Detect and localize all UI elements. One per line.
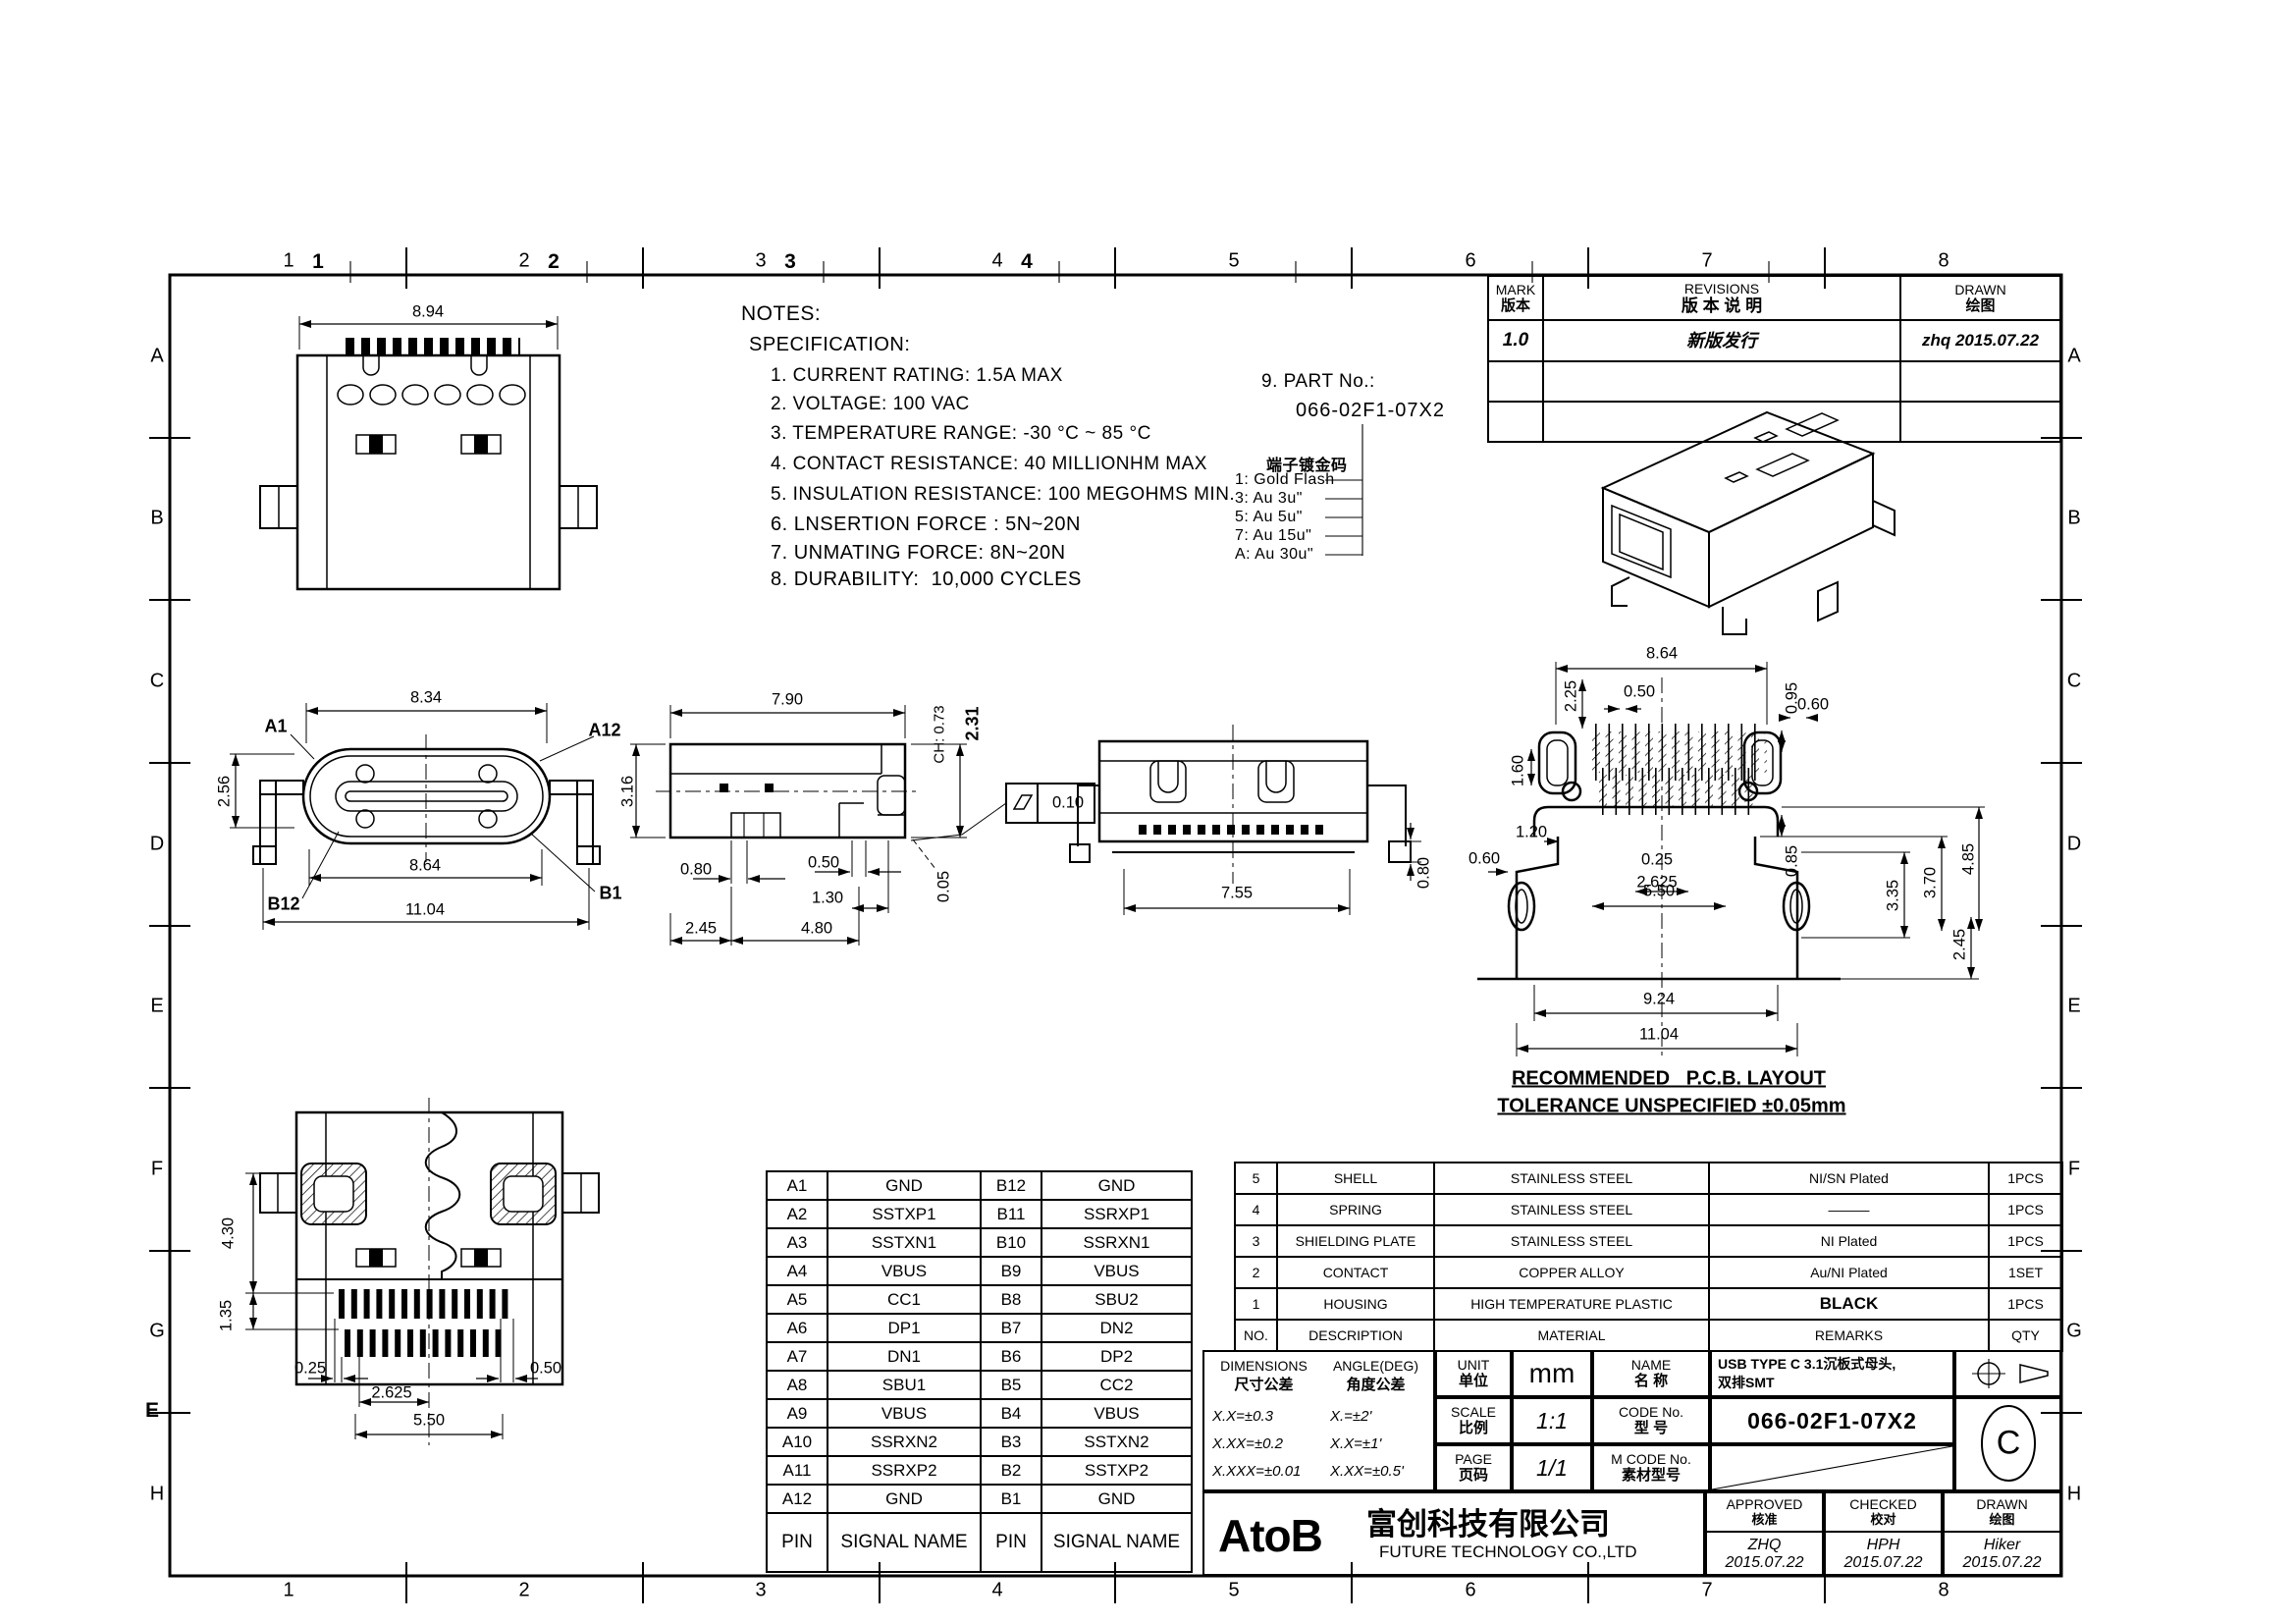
signal-cell: SSTXP1 <box>828 1200 981 1228</box>
grid-col-label: 7 <box>1701 250 1712 273</box>
dim-label: 1.30 <box>812 890 843 908</box>
spec-item: 8. DURABILITY: 10,000 CYCLES <box>771 568 1082 591</box>
pin-header: PIN <box>981 1513 1041 1572</box>
revisions-header-mark-cn: 版本 <box>1501 298 1530 314</box>
pin-cell: A6 <box>767 1314 828 1342</box>
page-label-cn: 页码 <box>1459 1467 1488 1484</box>
grid-row-label: F <box>151 1159 163 1181</box>
notes-title: NOTES: <box>741 302 821 326</box>
grid-col-label: 3 <box>755 250 766 273</box>
view-pcb-layout <box>1477 662 1985 1060</box>
bom-material: STAINLESS STEEL <box>1434 1194 1709 1225</box>
dim-label: 1.20 <box>1516 824 1547 842</box>
grid-col-label: 5 <box>1228 1580 1239 1602</box>
pin-callout-b12: B12 <box>267 894 299 915</box>
drawn-label-en: DRAWN <box>1976 1496 2027 1512</box>
drawing-sheet: 1 2 3 4 5 6 7 8 1 2 3 4 1 2 3 4 5 6 7 8 … <box>0 0 2296 1623</box>
signal-header: SIGNAL NAME <box>1041 1513 1192 1572</box>
signal-cell: DP1 <box>828 1314 981 1342</box>
signal-cell: SSRXN2 <box>828 1428 981 1456</box>
grid-row-label: C <box>150 671 164 693</box>
dim-label: 2.625 <box>371 1384 411 1403</box>
bom-qty: 1PCS <box>1989 1163 2062 1194</box>
dim-label: 11.04 <box>1639 1026 1679 1045</box>
dim-label: 9.24 <box>1643 991 1675 1009</box>
page-label-en: PAGE <box>1455 1451 1492 1467</box>
signal-cell: DN1 <box>828 1342 981 1371</box>
grid-row-label: D <box>150 834 164 856</box>
spec-item: 6. LNSERTION FORCE : 5N~20N <box>771 514 1081 536</box>
revision-mark: 1.0 <box>1503 330 1528 352</box>
dim-label: 5.50 <box>413 1412 445 1431</box>
dim-label: 8.64 <box>1646 645 1678 664</box>
grid-col-label: 4 <box>991 250 1002 273</box>
table-row: A4VBUSB9VBUS <box>767 1257 1192 1285</box>
approved-label-cn: 核准 <box>1751 1513 1777 1528</box>
bom-no: 4 <box>1235 1194 1277 1225</box>
pin-cell: A8 <box>767 1371 828 1399</box>
grid-row-label: D <box>2067 834 2081 856</box>
grid-col-label: 8 <box>1938 250 1949 273</box>
spec-item: 2. VOLTAGE: 100 VAC <box>771 394 970 415</box>
dim-label: 4.80 <box>801 920 832 939</box>
bom-no: 1 <box>1235 1288 1277 1320</box>
bom-header-remarks: REMARKS <box>1709 1320 1989 1351</box>
grid-col-label: 7 <box>1701 1580 1712 1602</box>
dim-label: 0.05 <box>935 871 954 902</box>
bom-table: 5SHELLSTAINLESS STEELNI/SN Plated1PCS 4S… <box>1234 1162 2063 1352</box>
dim-label: 8.34 <box>410 689 442 708</box>
part-no-value: 066-02F1-07X2 <box>1296 400 1445 422</box>
part-no-bracket <box>1325 424 1362 556</box>
spec-item: 5. INSULATION RESISTANCE: 100 MEGOHMS MI… <box>771 484 1235 506</box>
dim-label: 0.60 <box>1468 850 1500 869</box>
pin-cell: A3 <box>767 1228 828 1257</box>
pin-cell: B10 <box>981 1228 1041 1257</box>
grid-col-label: 4 <box>991 1580 1002 1602</box>
grid-row-label: E <box>2067 996 2080 1018</box>
unit-label-cn: 单位 <box>1459 1373 1488 1389</box>
part-name-line1: USB TYPE C 3.1沉板式母头, <box>1718 1355 1947 1374</box>
table-row: A3SSTXN1B10SSRXN1 <box>767 1228 1192 1257</box>
tolerance-angle-header-cn: 角度公差 <box>1324 1374 1427 1394</box>
grid-col-label: 6 <box>1465 1580 1475 1602</box>
dim-label: 0.80 <box>680 861 712 880</box>
checked-label-cn: 校对 <box>1870 1513 1896 1528</box>
plating-option: 1: Gold Flash <box>1235 471 1335 489</box>
pin-table: A1GNDB12GND A2SSTXP1B11SSRXP1 A3SSTXN1B1… <box>766 1170 1193 1573</box>
bom-header-desc: DESCRIPTION <box>1277 1320 1434 1351</box>
spec-item: 3. TEMPERATURE RANGE: -30 °C ~ 85 °C <box>771 423 1151 445</box>
grid-row-label: H <box>150 1484 164 1506</box>
bom-no: 2 <box>1235 1257 1277 1288</box>
table-row: A2SSTXP1B11SSRXP1 <box>767 1200 1192 1228</box>
revision-desc: 新版发行 <box>1686 331 1757 352</box>
approved-label-en: APPROVED <box>1727 1496 1803 1512</box>
table-row: 5SHELLSTAINLESS STEELNI/SN Plated1PCS <box>1235 1163 2062 1194</box>
bom-qty: 1PCS <box>1989 1288 2062 1320</box>
revision-drawn: zhq 2015.07.22 <box>1922 331 2039 351</box>
grid-row-label: H <box>2067 1484 2081 1506</box>
bom-material: STAINLESS STEEL <box>1434 1163 1709 1194</box>
dim-label: 0.85 <box>1784 845 1802 877</box>
signal-cell: SSRXP1 <box>1041 1200 1192 1228</box>
pin-cell: B5 <box>981 1371 1041 1399</box>
table-row: A11SSRXP2B2SSTXP2 <box>767 1456 1192 1485</box>
signal-cell: SBU2 <box>1041 1285 1192 1314</box>
plating-option: 7: Au 15u" <box>1235 527 1311 545</box>
signal-cell: VBUS <box>828 1257 981 1285</box>
pin-cell: A10 <box>767 1428 828 1456</box>
signal-cell: SSRXP2 <box>828 1456 981 1485</box>
table-row: 1HOUSINGHIGH TEMPERATURE PLASTICBLACK1PC… <box>1235 1288 2062 1320</box>
plating-option: 3: Au 3u" <box>1235 490 1303 508</box>
table-row: 2CONTACTCOPPER ALLOYAu/NI Plated1SET <box>1235 1257 2062 1288</box>
dim-label: 1.60 <box>1510 755 1528 786</box>
grid-row-label: B <box>150 508 163 530</box>
view-side <box>630 705 1095 946</box>
grid-row-label: A <box>150 346 163 368</box>
pin-callout-b1: B1 <box>599 884 621 904</box>
bom-qty: 1PCS <box>1989 1194 2062 1225</box>
signal-cell: GND <box>828 1485 981 1513</box>
pin-cell: A4 <box>767 1257 828 1285</box>
table-row: A9VBUSB4VBUS <box>767 1399 1192 1428</box>
dim-label: 3.35 <box>1885 880 1903 911</box>
pin-cell: B4 <box>981 1399 1041 1428</box>
bom-desc: CONTACT <box>1277 1257 1434 1288</box>
scale-label-en: SCALE <box>1451 1404 1496 1420</box>
bom-qty: 1SET <box>1989 1257 2062 1288</box>
grid-row-label: C <box>2067 671 2081 693</box>
dim-label: 0.50 <box>1624 683 1655 702</box>
pin-cell: B3 <box>981 1428 1041 1456</box>
tolerance-dim-row: X.XXX=±0.01 <box>1212 1458 1301 1486</box>
approved-date: 2015.07.22 <box>1725 1554 1803 1572</box>
grid-row-label: G <box>2066 1321 2082 1343</box>
bom-header-no: NO. <box>1235 1320 1277 1351</box>
bom-header-material: MATERIAL <box>1434 1320 1709 1351</box>
dim-label: 8.94 <box>412 303 444 322</box>
bom-no: 3 <box>1235 1225 1277 1257</box>
pin-cell: B2 <box>981 1456 1041 1485</box>
tolerance-dim-header-en: DIMENSIONS <box>1212 1358 1315 1374</box>
table-footer-row: PINSIGNAL NAMEPINSIGNAL NAME <box>767 1513 1192 1572</box>
signal-cell: SSTXN1 <box>828 1228 981 1257</box>
dim-label: 3.70 <box>1922 867 1941 898</box>
signal-cell: VBUS <box>1041 1257 1192 1285</box>
pin-cell: B6 <box>981 1342 1041 1371</box>
table-row: 4SPRINGSTAINLESS STEEL———1PCS <box>1235 1194 2062 1225</box>
bom-material: COPPER ALLOY <box>1434 1257 1709 1288</box>
revisions-header-title-en: REVISIONS <box>1684 281 1759 297</box>
spec-item: 7. UNMATING FORCE: 8N~20N <box>771 542 1066 565</box>
tolerance-dim-row: X.X=±0.3 <box>1212 1403 1301 1431</box>
page-value: 1/1 <box>1536 1455 1568 1481</box>
dim-label: 7.90 <box>772 691 803 710</box>
table-row: A12GNDB1GND <box>767 1485 1192 1513</box>
signal-cell: GND <box>1041 1485 1192 1513</box>
pin-cell: B1 <box>981 1485 1041 1513</box>
code-value: 066-02F1-07X2 <box>1747 1408 1917 1434</box>
pcb-layout-note: RECOMMENDED P.C.B. LAYOUT <box>1512 1068 1826 1091</box>
plating-option: A: Au 30u" <box>1235 546 1313 564</box>
dim-label: 2.31 <box>963 706 984 740</box>
grid-row-label: E <box>150 996 163 1018</box>
table-row: A10SSRXN2B3SSTXN2 <box>767 1428 1192 1456</box>
dim-label: 0.25 <box>1641 851 1673 870</box>
view-isometric <box>1603 412 1895 634</box>
bom-qty: 1PCS <box>1989 1225 2062 1257</box>
signal-cell: CC2 <box>1041 1371 1192 1399</box>
grid-col-label: 1 <box>283 250 294 273</box>
bom-desc: HOUSING <box>1277 1288 1434 1320</box>
dim-label: 2.25 <box>1563 680 1581 712</box>
bom-desc: SHIELDING PLATE <box>1277 1225 1434 1257</box>
grid-row-label: G <box>149 1321 165 1343</box>
bom-material: STAINLESS STEEL <box>1434 1225 1709 1257</box>
bom-desc: SHELL <box>1277 1163 1434 1194</box>
bom-remarks: ——— <box>1709 1194 1989 1225</box>
signal-cell: DN2 <box>1041 1314 1192 1342</box>
revisions-header-mark-en: MARK <box>1496 282 1535 298</box>
dim-label: 0.50 <box>808 854 839 873</box>
view-rear-top <box>260 316 597 589</box>
dim-label: 4.30 <box>220 1217 239 1249</box>
pcb-tolerance-note: TOLERANCE UNSPECIFIED ±0.05mm <box>1497 1096 1845 1118</box>
name-label-en: NAME <box>1631 1357 1671 1373</box>
tolerance-angle-header-en: ANGLE(DEG) <box>1324 1358 1427 1374</box>
grid-col-label: 5 <box>1228 250 1239 273</box>
grid-row-label: A <box>2067 346 2080 368</box>
company-name-en: FUTURE TECHNOLOGY CO.,LTD <box>1379 1542 1637 1562</box>
flatness-icon <box>1014 795 1032 809</box>
pin-cell: A7 <box>767 1342 828 1371</box>
bom-remarks: NI Plated <box>1709 1225 1989 1257</box>
spec-item: 4. CONTACT RESISTANCE: 40 MILLIONHM MAX <box>771 454 1207 475</box>
grid-col-label-bold: 1 <box>312 250 324 274</box>
drawn-label-cn: 绘图 <box>1989 1513 2014 1528</box>
pin-cell: A12 <box>767 1485 828 1513</box>
bom-remarks: BLACK <box>1709 1288 1989 1320</box>
bom-desc: SPRING <box>1277 1194 1434 1225</box>
pin-cell: A1 <box>767 1171 828 1200</box>
pin-callout-a1: A1 <box>264 717 287 737</box>
flatness-value: 0.10 <box>1052 794 1084 813</box>
company-logo: AtoB <box>1218 1509 1322 1562</box>
pin-cell: B11 <box>981 1200 1041 1228</box>
grid-col-label-bold: 3 <box>784 250 796 274</box>
table-row: A8SBU1B5CC2 <box>767 1371 1192 1399</box>
dim-label: 0.60 <box>1797 696 1829 715</box>
signal-cell: VBUS <box>828 1399 981 1428</box>
revisions-header-drawn-cn: 绘图 <box>1965 298 1995 314</box>
signal-cell: CC1 <box>828 1285 981 1314</box>
tolerance-angle-row: X.X=±1' <box>1330 1431 1404 1458</box>
dim-label: 11.04 <box>405 901 445 920</box>
signal-cell: VBUS <box>1041 1399 1192 1428</box>
pin-cell: B9 <box>981 1257 1041 1285</box>
grid-col-label: 8 <box>1938 1580 1949 1602</box>
grid-col-label: 2 <box>518 250 529 273</box>
dim-label: 7.55 <box>1221 885 1253 903</box>
bom-material: HIGH TEMPERATURE PLASTIC <box>1434 1288 1709 1320</box>
tolerance-dim-row: X.XX=±0.2 <box>1212 1431 1301 1458</box>
pin-callout-a12: A12 <box>588 721 620 741</box>
revisions-header-title-cn: 版 本 说 明 <box>1682 297 1762 316</box>
scale-label-cn: 比例 <box>1459 1420 1488 1436</box>
dim-label: 0.50 <box>530 1360 561 1379</box>
bom-remarks: Au/NI Plated <box>1709 1257 1989 1288</box>
code-label-cn: 型 号 <box>1634 1420 1668 1436</box>
table-row: A5CC1B8SBU2 <box>767 1285 1192 1314</box>
pin-cell: B7 <box>981 1314 1041 1342</box>
bom-no: 5 <box>1235 1163 1277 1194</box>
approved-name: ZHQ <box>1748 1537 1782 1554</box>
pin-cell: A11 <box>767 1456 828 1485</box>
dim-label: 2.45 <box>1951 929 1970 960</box>
drawn-date: 2015.07.22 <box>1962 1554 2041 1572</box>
mcode-label-en: M CODE No. <box>1611 1451 1691 1467</box>
signal-header: SIGNAL NAME <box>828 1513 981 1572</box>
signal-cell: SSTXP2 <box>1041 1456 1192 1485</box>
plating-option: 5: Au 5u" <box>1235 509 1303 526</box>
signal-cell: SBU1 <box>828 1371 981 1399</box>
pin-cell: A5 <box>767 1285 828 1314</box>
grid-row-label-stray: E <box>145 1399 159 1423</box>
part-no-label: 9. PART No.: <box>1261 371 1375 393</box>
table-row: A7DN1B6DP2 <box>767 1342 1192 1371</box>
spec-item: 1. CURRENT RATING: 1.5A MAX <box>771 365 1063 387</box>
grid-col-label-bold: 2 <box>548 250 560 274</box>
grid-col-label: 2 <box>518 1580 529 1602</box>
checked-label-en: CHECKED <box>1849 1496 1916 1512</box>
table-row: A6DP1B7DN2 <box>767 1314 1192 1342</box>
signal-cell: DP2 <box>1041 1342 1192 1371</box>
dim-label: 1.35 <box>218 1300 237 1331</box>
table-row: 3SHIELDING PLATESTAINLESS STEELNI Plated… <box>1235 1225 2062 1257</box>
dim-label: 4.85 <box>1960 843 1979 875</box>
tolerance-dim-header-cn: 尺寸公差 <box>1212 1374 1315 1394</box>
signal-cell: SSRXN1 <box>1041 1228 1192 1257</box>
part-name-line2: 双排SMT <box>1718 1374 1947 1392</box>
dim-label: 5.50 <box>1643 883 1675 901</box>
dim-label: 2.45 <box>685 920 717 939</box>
mcode-label-cn: 素材型号 <box>1622 1467 1681 1484</box>
signal-cell: SSTXN2 <box>1041 1428 1192 1456</box>
drawn-name: Hiker <box>1984 1537 2020 1554</box>
dim-label: 0.80 <box>1415 857 1434 889</box>
signal-cell: GND <box>1041 1171 1192 1200</box>
name-label-cn: 名 称 <box>1634 1373 1668 1389</box>
dim-label: 2.56 <box>216 776 235 807</box>
dim-label: 0.25 <box>294 1360 326 1379</box>
notes-subtitle: SPECIFICATION: <box>749 334 910 356</box>
revision-letter: C <box>1997 1425 2021 1463</box>
pin-cell: B12 <box>981 1171 1041 1200</box>
bom-remarks: NI/SN Plated <box>1709 1163 1989 1194</box>
grid-row-label: F <box>2068 1159 2080 1181</box>
dim-label: 8.64 <box>409 857 441 876</box>
unit-value: mm <box>1529 1358 1575 1389</box>
grid-col-label: 1 <box>283 1580 294 1602</box>
code-label-en: CODE No. <box>1619 1404 1683 1420</box>
company-name-cn: 富创科技有限公司 <box>1366 1499 1610 1543</box>
revisions-header-drawn-en: DRAWN <box>1954 282 2005 298</box>
table-row: A1GNDB12GND <box>767 1171 1192 1200</box>
checked-date: 2015.07.22 <box>1843 1554 1922 1572</box>
bom-header-qty: QTY <box>1989 1320 2062 1351</box>
pin-cell: A2 <box>767 1200 828 1228</box>
tolerance-angle-row: X.XX=±0.5' <box>1330 1458 1404 1486</box>
grid-col-label: 6 <box>1465 250 1475 273</box>
grid-row-label: B <box>2067 508 2080 530</box>
scale-value: 1:1 <box>1536 1408 1568 1434</box>
dim-label: CH: 0.73 <box>932 705 948 763</box>
unit-label-en: UNIT <box>1458 1357 1490 1373</box>
pin-cell: B8 <box>981 1285 1041 1314</box>
grid-col-label: 3 <box>755 1580 766 1602</box>
signal-cell: GND <box>828 1171 981 1200</box>
view-bottom <box>245 1098 599 1445</box>
pin-cell: A9 <box>767 1399 828 1428</box>
checked-name: HPH <box>1867 1537 1900 1554</box>
dim-label: 3.16 <box>619 776 638 807</box>
grid-col-label-bold: 4 <box>1021 250 1033 274</box>
table-header-row: NO.DESCRIPTIONMATERIALREMARKSQTY <box>1235 1320 2062 1351</box>
tolerance-angle-row: X.=±2' <box>1330 1403 1404 1431</box>
pin-header: PIN <box>767 1513 828 1572</box>
